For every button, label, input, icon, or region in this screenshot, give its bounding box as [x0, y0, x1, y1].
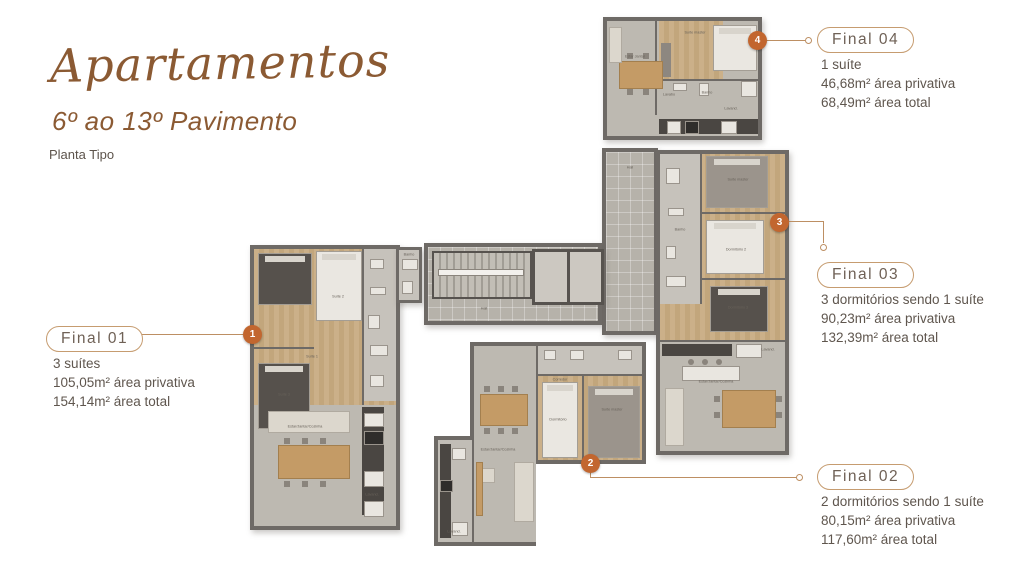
room-label: Suíte master: [601, 408, 622, 412]
unit-feature: 105,05m² área privativa: [53, 373, 195, 392]
partition-wall: [700, 154, 702, 304]
chair-icon: [643, 89, 649, 95]
shower-icon: [741, 81, 757, 97]
room-label: Banho: [675, 228, 686, 232]
room-label: Hall: [481, 307, 487, 311]
core-hall-horizontal: Hall: [424, 243, 602, 325]
stool-icon: [716, 359, 722, 365]
unit-badge-3[interactable]: 3: [770, 213, 789, 232]
dining-table-icon: [278, 445, 350, 479]
elevator-shaft-icon: [532, 249, 570, 305]
leader-line: [823, 221, 824, 243]
unit-feature: 132,39m² área total: [821, 328, 984, 347]
kitchen-counter-icon: [662, 344, 732, 356]
unit-feature: 117,60m² área total: [821, 530, 984, 549]
toilet-icon: [368, 315, 380, 329]
leader-line: [788, 221, 824, 222]
appliance-icon: [364, 471, 384, 487]
floor: [606, 152, 654, 331]
partition-wall: [254, 347, 314, 349]
room-label: Estar/Jantar/Cozinha: [481, 448, 516, 452]
unit-feature: 46,68m² área privativa: [821, 74, 955, 93]
appliance-icon: [452, 448, 466, 460]
sink-icon: [673, 83, 687, 91]
appliance-icon: [721, 121, 737, 134]
sofa-icon: [665, 388, 684, 446]
chair-icon: [320, 481, 326, 487]
cabinet-icon: [609, 27, 622, 63]
shower-icon: [666, 168, 680, 184]
stove-icon: [440, 480, 453, 492]
sink-icon: [370, 287, 386, 295]
sofa-icon: [514, 462, 534, 522]
sink-icon: [402, 259, 418, 270]
bed-icon: [588, 386, 640, 458]
dining-table-icon: [619, 61, 663, 89]
leader-dot: [820, 244, 827, 251]
final-01-details: 3 suítes 105,05m² área privativa 154,14m…: [53, 354, 195, 411]
floor-plan-final-03: Suíte master Dormitório 2 Dormitório 3 B…: [656, 150, 789, 455]
unit-feature: 2 dormitórios sendo 1 suíte: [821, 492, 984, 511]
chair-icon: [484, 386, 490, 392]
final-03-details: 3 dormitórios sendo 1 suíte 90,23m² área…: [821, 290, 984, 347]
room-label: Dormitório 3: [728, 306, 748, 310]
chair-icon: [776, 396, 782, 402]
final-04-label[interactable]: Final 04: [817, 27, 914, 53]
unit-feature: 3 dormitórios sendo 1 suíte: [821, 290, 984, 309]
stool-icon: [702, 359, 708, 365]
unit-badge-2[interactable]: 2: [581, 454, 600, 473]
room-label: Corredor: [553, 378, 568, 382]
partition-wall: [582, 376, 584, 460]
chair-icon: [302, 481, 308, 487]
room-label: Suíte 1: [306, 355, 318, 359]
chair-icon: [776, 412, 782, 418]
room-label: Banho: [702, 91, 713, 95]
appliance-icon: [364, 413, 384, 427]
page-subtitle: 6º ao 13º Pavimento: [52, 106, 297, 137]
chair-icon: [320, 438, 326, 444]
room-label: Estar Jantar: [625, 55, 645, 59]
stove-icon: [685, 121, 699, 134]
partition-wall: [362, 249, 364, 405]
room-label: Suíte master: [684, 31, 705, 35]
dining-table-icon: [480, 394, 528, 426]
unit-feature: 3 suítes: [53, 354, 195, 373]
room-label: Banho: [404, 253, 415, 257]
bed-icon: [258, 253, 312, 305]
tub-icon: [666, 276, 686, 287]
sofa-icon: [268, 411, 350, 433]
bed-icon: [316, 251, 362, 321]
stair-rail-icon: [438, 269, 524, 276]
tv-rack-icon: [476, 462, 483, 516]
final-01-label[interactable]: Final 01: [46, 326, 143, 352]
chair-icon: [714, 412, 720, 418]
chair-icon: [498, 428, 504, 434]
room-label: Estar/Jantar/Cozinha: [699, 380, 734, 384]
bed-icon: [713, 25, 757, 71]
leader-line: [766, 40, 805, 41]
stove-icon: [364, 431, 384, 445]
appliance-icon: [667, 121, 681, 134]
partition-wall: [702, 278, 785, 280]
room-label: Lavabo: [663, 93, 675, 97]
leader-line: [137, 334, 243, 335]
room-label: Lavand.: [365, 493, 378, 497]
partition-wall: [702, 212, 785, 214]
final-02-details: 2 dormitórios sendo 1 suíte 80,15m² área…: [821, 492, 984, 549]
page-title: Apartamentos: [50, 33, 391, 93]
sink-icon: [618, 350, 632, 360]
sink-icon: [370, 259, 384, 269]
partition-wall: [660, 340, 785, 342]
elevator-shaft-icon: [567, 249, 604, 305]
plan-type-label: Planta Tipo: [49, 147, 114, 162]
final-04-details: 1 suíte 46,68m² área privativa 68,49m² á…: [821, 55, 955, 112]
partition-wall: [538, 374, 642, 376]
chair-icon: [284, 481, 290, 487]
room-label: Lavand.: [761, 348, 774, 352]
dining-table-icon: [722, 390, 776, 428]
leader-dot: [805, 37, 812, 44]
toilet-icon: [666, 246, 676, 259]
leader-line: [590, 477, 797, 478]
room-label: Lavand.: [724, 107, 737, 111]
final-03-label[interactable]: Final 03: [817, 262, 914, 288]
core-hall-vertical: Hall: [602, 148, 658, 335]
chair-icon: [484, 428, 490, 434]
unit-feature: 68,49m² área total: [821, 93, 955, 112]
room-label: Suíte 3: [278, 393, 290, 397]
unit-feature: 80,15m² área privativa: [821, 511, 984, 530]
sink-icon: [570, 350, 584, 360]
tub-icon: [370, 345, 388, 356]
unit-badge-1[interactable]: 1: [243, 325, 262, 344]
sink-icon: [544, 350, 556, 360]
floor-plan-final-04: Suíte master Estar Jantar Lavabo Banho L…: [603, 17, 762, 140]
floor-plan-page: Apartamentos 6º ao 13º Pavimento Planta …: [0, 0, 1024, 576]
chair-icon: [512, 428, 518, 434]
chair-icon: [627, 89, 633, 95]
island-icon: [682, 366, 740, 381]
washer-icon: [364, 501, 384, 517]
stool-icon: [688, 359, 694, 365]
chair-icon: [302, 438, 308, 444]
chair-icon: [512, 386, 518, 392]
shower-icon: [370, 375, 384, 387]
room-label: Dormitório: [549, 418, 566, 422]
floor-plan-final-01-bath: Banho: [396, 247, 422, 303]
room-label: Hall: [627, 166, 633, 170]
room-label: Estar/Jantar/Cozinha: [288, 425, 323, 429]
sink-icon: [668, 208, 684, 216]
leader-dot: [796, 474, 803, 481]
chair-icon: [284, 438, 290, 444]
toilet-icon: [402, 281, 413, 294]
room-label: Dormitório 2: [726, 248, 746, 252]
unit-feature: 90,23m² área privativa: [821, 309, 984, 328]
unit-feature: 1 suíte: [821, 55, 955, 74]
floor-plan-final-02: Suíte master Dormitório Corredor Estar/J…: [432, 340, 658, 550]
unit-badge-4[interactable]: 4: [748, 31, 767, 50]
room-label: Lavand.: [447, 530, 460, 534]
chair-icon: [714, 396, 720, 402]
chair-icon: [498, 386, 504, 392]
appliance-icon: [736, 344, 762, 358]
unit-feature: 154,14m² área total: [53, 392, 195, 411]
room-label: Suíte 2: [332, 295, 344, 299]
final-02-label[interactable]: Final 02: [817, 464, 914, 490]
room-label: Suíte master: [727, 178, 748, 182]
floor-plan-final-01: Suíte 2 Suíte 1 Suíte 3 Estar/Jantar/Coz…: [250, 245, 400, 530]
